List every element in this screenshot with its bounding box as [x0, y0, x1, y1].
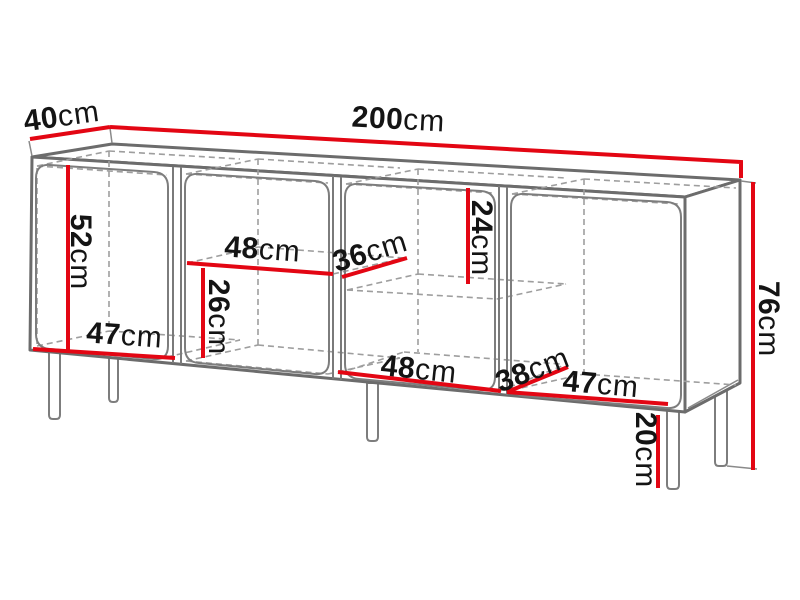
cabinet-right-side-face — [685, 180, 740, 412]
dimension-label-c3-upper-height: 24cm — [465, 200, 498, 276]
leg-front-middle — [367, 383, 378, 441]
leg-front-right — [667, 410, 679, 489]
dimension-label-overall-height: 76cm — [752, 281, 785, 357]
dimension-label-shelf-width: 48cm — [223, 230, 301, 268]
furniture-dimension-diagram: 40cm 200cm 76cm 52cm 47cm 48cm 36cm 24cm… — [0, 0, 800, 600]
dimension-label-leg-height: 20cm — [629, 412, 662, 488]
dimension-label-top-width: 200cm — [351, 101, 446, 139]
dimension-label-c1-width: 47cm — [85, 316, 163, 354]
tick-width-left — [110, 128, 112, 143]
tick-depth-left — [29, 141, 32, 156]
leg-back-left — [109, 358, 118, 402]
diagram-svg: 40cm 200cm 76cm 52cm 47cm 48cm 36cm 24cm… — [0, 0, 800, 600]
dimension-label-c2-lower-height: 26cm — [202, 279, 235, 355]
leg-front-left — [49, 352, 60, 419]
dimension-label-c4-width: 47cm — [561, 365, 640, 405]
dimension-label-c1-height: 52cm — [64, 214, 97, 290]
